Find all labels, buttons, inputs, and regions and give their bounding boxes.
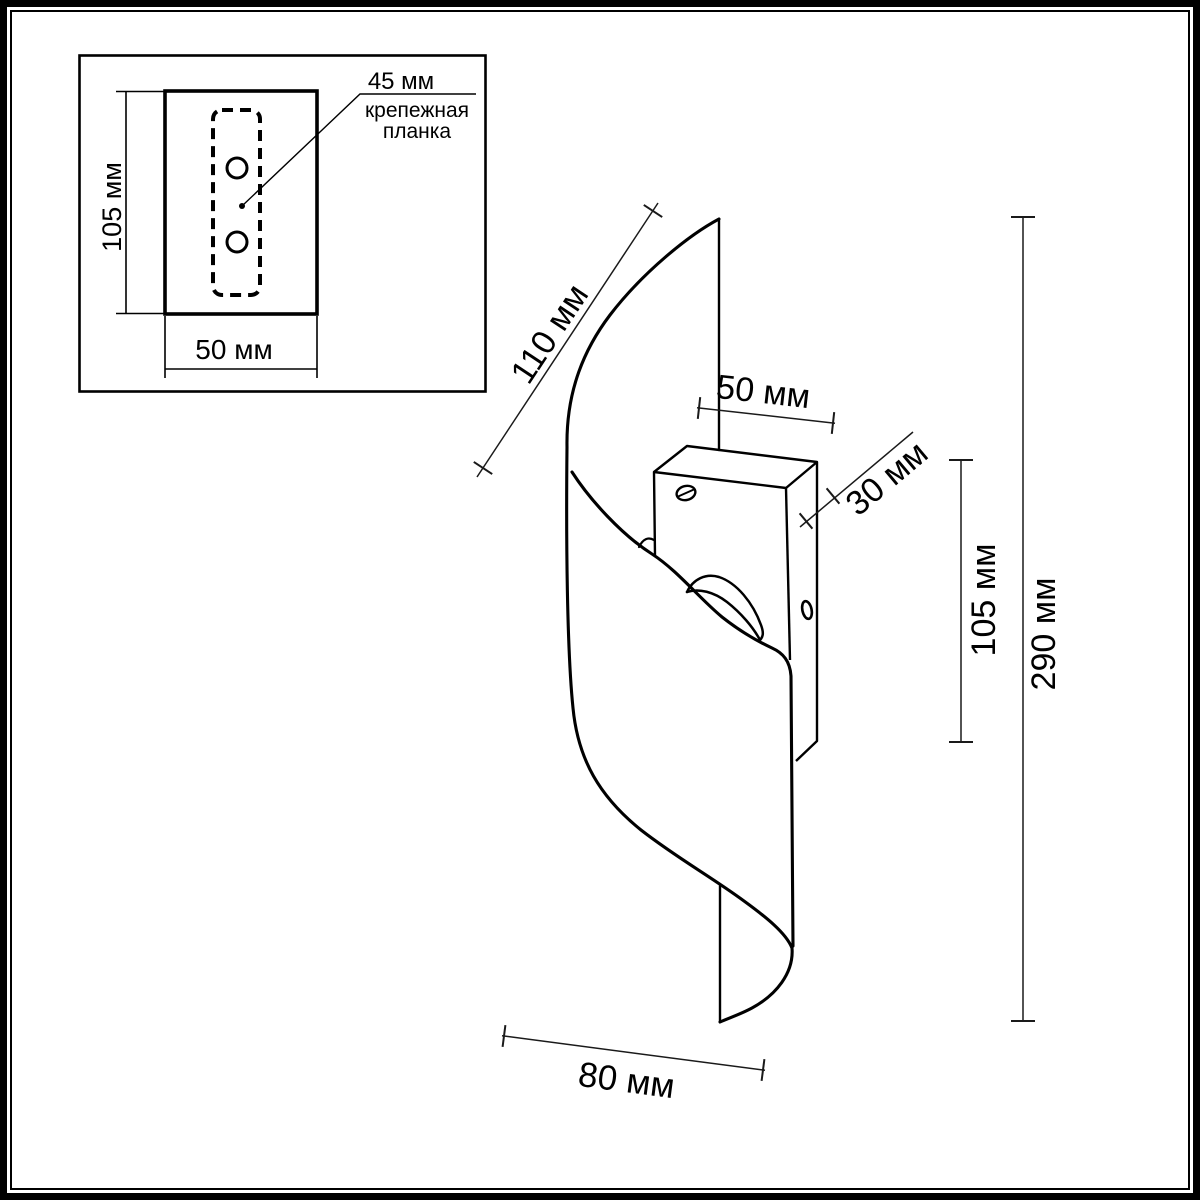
inset-caption-line1: крепежная (365, 99, 469, 122)
spiral-inner-edge (572, 472, 793, 946)
wall-lamp-dimension-drawing: 105 мм 50 мм 45 мм крепежная планка (0, 0, 1200, 1200)
screw-slot (677, 489, 695, 497)
lamp-cylinder-outer-arc (687, 576, 763, 640)
inset-labels: 105 мм 50 мм 45 мм крепежная планка (97, 68, 469, 365)
technical-drawing-page: 105 мм 50 мм 45 мм крепежная планка (0, 0, 1200, 1200)
inset-plate-width-label: 50 мм (195, 334, 272, 365)
inset-bracket-width-label: 45 мм (368, 68, 434, 95)
mounting-bracket-dashed (213, 110, 260, 295)
base-width-label: 80 мм (576, 1055, 677, 1106)
lamp-spiral (567, 219, 793, 1022)
side-hole (801, 600, 814, 620)
mounting-box-front-right-edge (786, 488, 790, 660)
lamp-cylinder-inner-arc (687, 590, 760, 640)
total-height-label: 290 мм (1025, 578, 1063, 691)
bracket-depth-label: 30 мм (839, 434, 935, 524)
bracket-width-label: 50 мм (714, 368, 812, 416)
screw-hole-top (227, 158, 247, 178)
inset-caption-line2: планка (383, 120, 452, 143)
screw-hole-bottom (227, 232, 247, 252)
mounting-box-top-edges (654, 462, 817, 488)
shade-edge-label: 110 мм (504, 277, 597, 390)
mounting-plate (165, 91, 317, 314)
bracket-height-label: 105 мм (965, 544, 1003, 657)
inset-plate-height-label: 105 мм (97, 162, 127, 252)
